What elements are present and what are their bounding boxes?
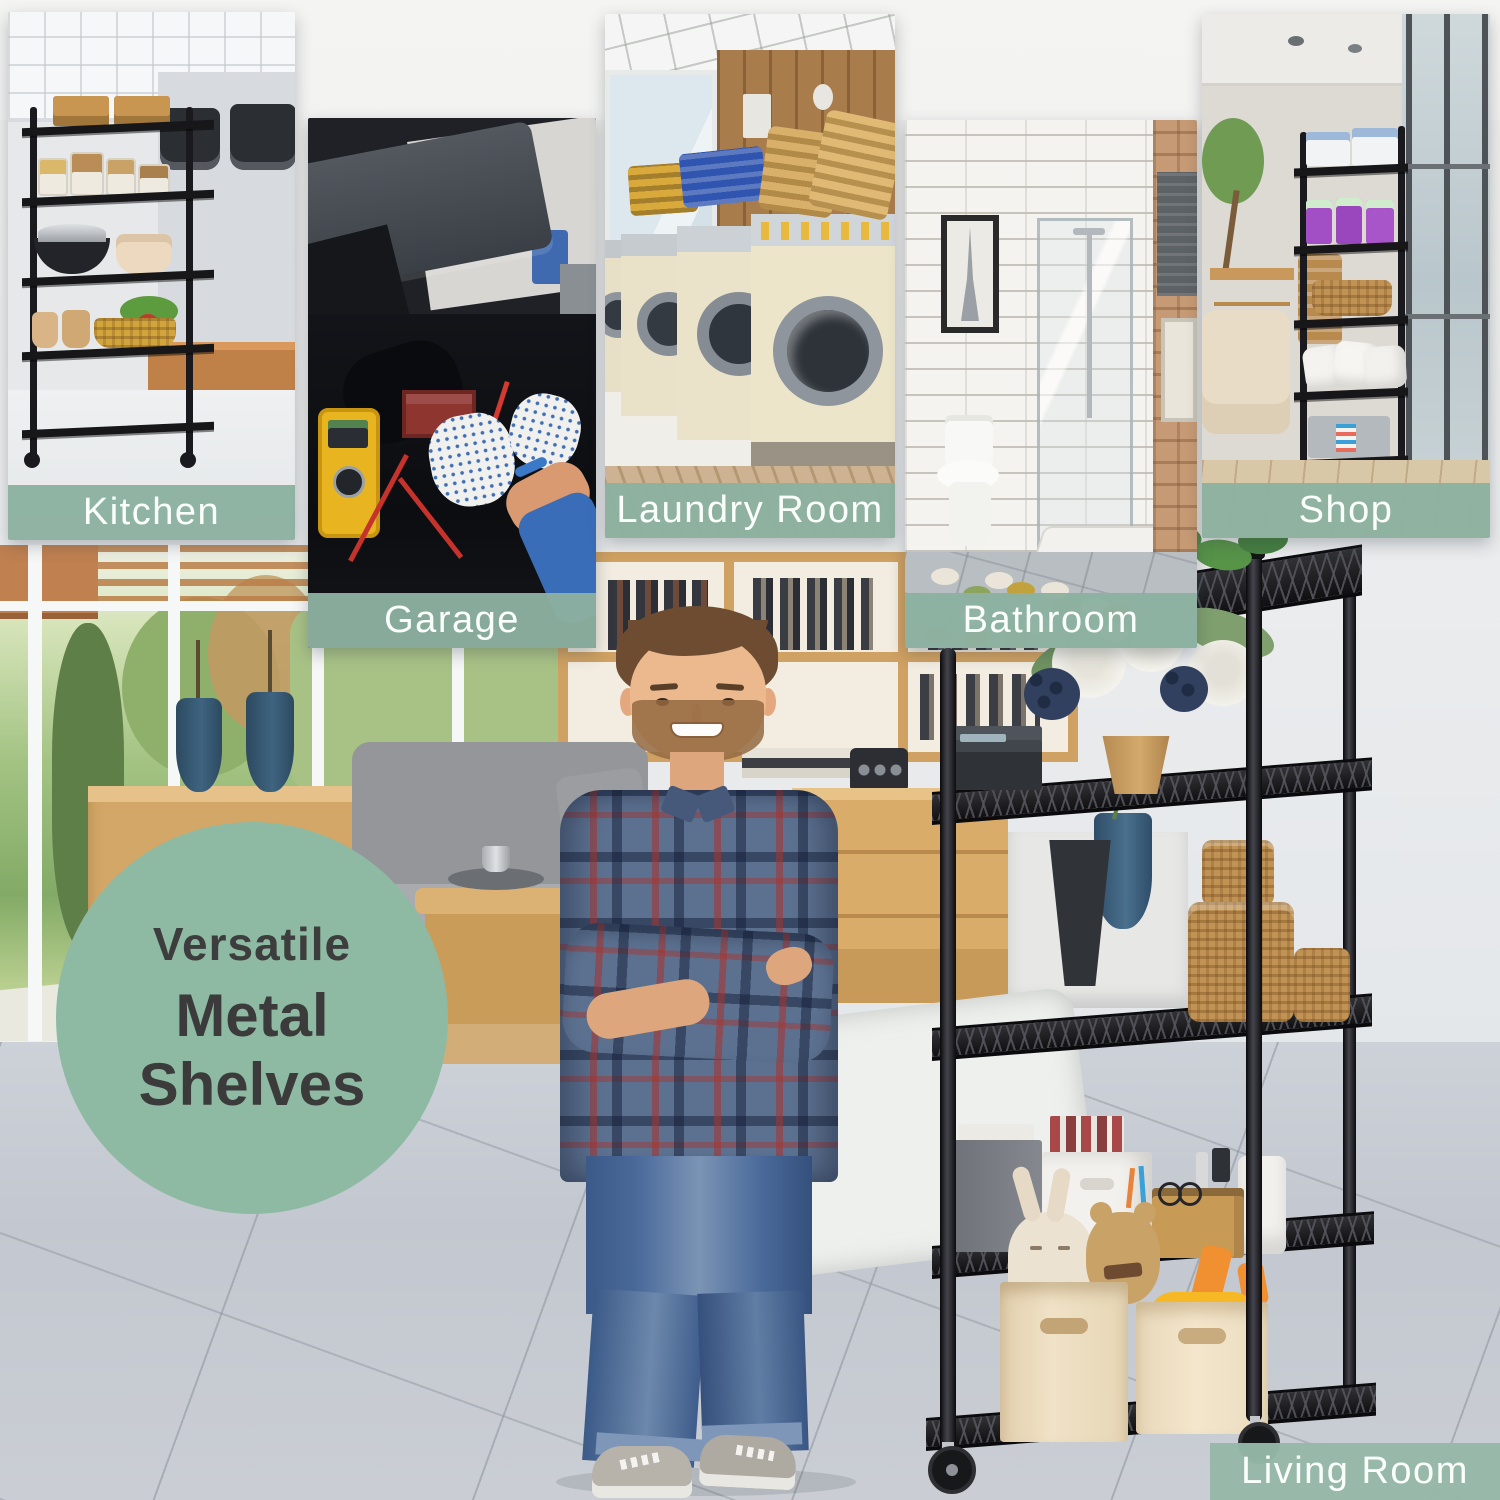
wood-table — [1210, 268, 1294, 280]
storage-box-white — [1306, 132, 1350, 166]
bunny-eye — [1058, 1246, 1070, 1250]
wicker-basket-side — [1294, 948, 1350, 1022]
product-collage: Versatile Metal Shelves K — [0, 0, 1500, 1500]
laundry-label: Laundry Room — [616, 489, 883, 532]
white-pillow — [1363, 345, 1408, 390]
glass-mullion — [1444, 14, 1450, 460]
panel-laundry: Laundry Room — [605, 14, 895, 538]
eiffel-picture — [941, 215, 999, 333]
food-sack — [62, 310, 90, 348]
shelf-front-left-post — [940, 648, 956, 1454]
detergent-pack — [1306, 200, 1332, 244]
kitchen-label-band: Kitchen — [8, 485, 295, 540]
laundry-basket-blue — [678, 146, 767, 208]
pebble-rug-white — [931, 568, 959, 585]
teddy-bow — [1103, 1262, 1142, 1280]
shower-glass — [1037, 218, 1133, 552]
silver-cup — [482, 846, 510, 872]
wall-sign — [743, 94, 771, 138]
glass-rail — [1402, 314, 1490, 319]
badge-line2: Metal Shelves — [56, 981, 448, 1119]
bathroom-label-band: Bathroom — [905, 593, 1197, 648]
shower-head — [1073, 228, 1105, 235]
multimeter-screen — [328, 420, 368, 448]
food-container — [70, 152, 104, 196]
storage-box-white — [1352, 128, 1398, 166]
smartphone — [1212, 1148, 1230, 1182]
beige-sofa — [1202, 310, 1290, 434]
shower-pipe — [1087, 232, 1092, 418]
detergent-pack — [1366, 200, 1394, 244]
eyeglasses-lens — [1178, 1182, 1202, 1206]
food-container — [38, 158, 68, 196]
mini-caster — [24, 452, 40, 468]
sneaker — [699, 1434, 798, 1491]
caster-hub — [946, 1464, 958, 1476]
toilet-base — [949, 482, 991, 546]
mini-shelf-post — [1300, 132, 1307, 472]
food-sack — [32, 312, 58, 348]
berry-cluster — [1024, 668, 1080, 720]
panel-bathroom: Bathroom — [905, 120, 1197, 648]
panel-shop: Shop — [1202, 14, 1490, 538]
berry-cluster — [1160, 666, 1208, 712]
washer-controls — [761, 222, 891, 240]
window-mullion — [28, 545, 42, 1060]
living-room-label-band: Living Room — [1210, 1443, 1500, 1500]
wicker-basket-large — [1188, 902, 1294, 1022]
shelf-front-right-post — [1246, 550, 1262, 1422]
toy-crate — [1000, 1282, 1128, 1442]
shop-label: Shop — [1299, 489, 1394, 532]
crate-handle — [1040, 1318, 1088, 1334]
living-room-label: Living Room — [1241, 1450, 1469, 1493]
teddy-ear — [1134, 1202, 1156, 1224]
wok-lid — [38, 224, 106, 242]
panel-kitchen: Kitchen — [8, 12, 295, 540]
bunny-eye — [1030, 1246, 1042, 1250]
light-window — [1161, 318, 1197, 422]
mini-caster — [180, 452, 196, 468]
gift-box — [53, 96, 109, 126]
wicker-basket-small — [1202, 840, 1274, 906]
garage-label-band: Garage — [308, 593, 596, 648]
sneaker — [592, 1446, 692, 1498]
cream-pot — [116, 234, 172, 274]
panel-garage: Garage — [308, 118, 596, 648]
gray-storage-box — [1308, 416, 1390, 458]
bathroom-label: Bathroom — [963, 599, 1140, 642]
laundry-label-band: Laundry Room — [605, 483, 895, 538]
glass-wall — [1402, 14, 1490, 460]
blue-vase-small — [246, 692, 294, 792]
multimeter-dial — [333, 466, 365, 498]
mini-shelf-post — [1398, 126, 1405, 470]
washer — [751, 214, 895, 472]
recessed-light — [1348, 44, 1362, 53]
eiffel-tower — [955, 227, 985, 321]
black-wok — [34, 238, 110, 274]
recessed-light — [1288, 36, 1304, 46]
blue-vase-small — [176, 698, 222, 792]
handle-slot — [1080, 1178, 1114, 1190]
kitchen-label: Kitchen — [83, 491, 220, 534]
badge-circle: Versatile Metal Shelves — [56, 822, 448, 1214]
range-hood — [230, 104, 295, 170]
mini-shelf-tier — [1294, 388, 1408, 401]
veggie-basket — [94, 318, 176, 348]
glass-mullion — [1482, 14, 1488, 460]
glass-rail — [1402, 164, 1490, 169]
badge-line1: Versatile — [153, 917, 351, 971]
teddy-ear — [1090, 1202, 1112, 1224]
stereo-receiver — [950, 726, 1042, 790]
mini-shelf-post — [186, 107, 193, 457]
man-smile — [670, 722, 724, 738]
wall-sign-round — [813, 84, 833, 110]
crate-handle — [1178, 1328, 1226, 1344]
center-speaker — [850, 748, 908, 792]
food-container — [106, 158, 136, 196]
detergent-pack — [1336, 198, 1362, 244]
washer-door — [773, 296, 883, 406]
shop-label-band: Shop — [1202, 483, 1490, 538]
dark-blind-window — [1157, 172, 1197, 296]
storage-label — [1336, 424, 1356, 452]
garage-label: Garage — [384, 599, 520, 642]
picnic-basket — [1312, 280, 1392, 316]
stereo-display — [960, 734, 1006, 742]
